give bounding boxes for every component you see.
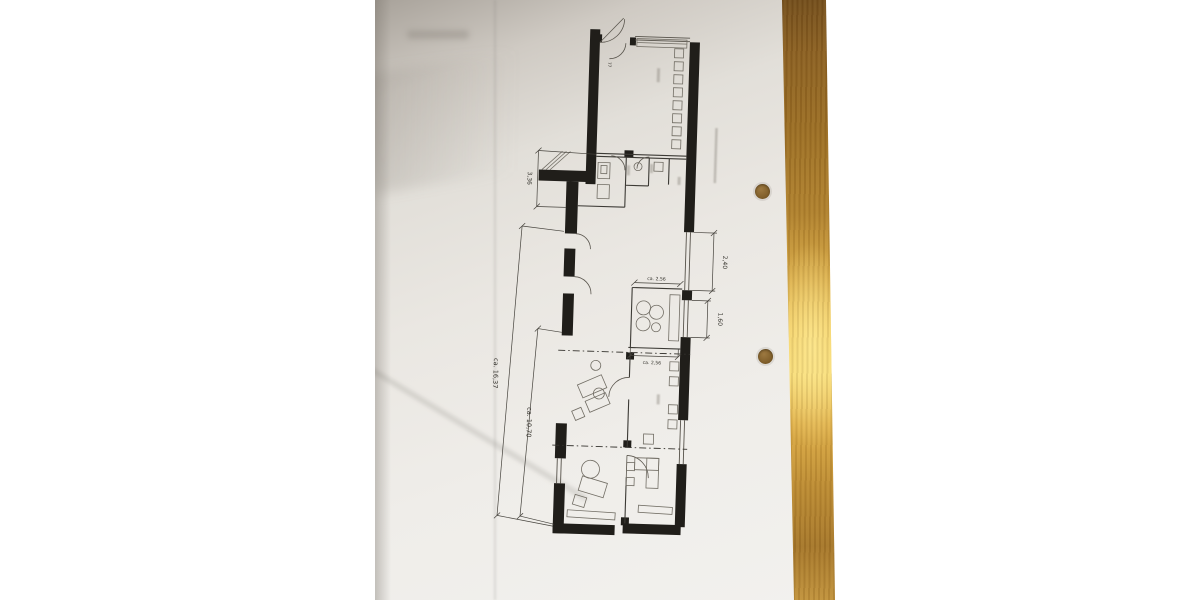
paper-right-edge-shadow [375,0,835,600]
floor-plan-paper-sheet: 3,36 2,40 1,60 ca. 2,56 ca. 2,56 ca. 16,… [375,0,835,600]
scene-canvas: 3,36 2,40 1,60 ca. 2,56 ca. 2,56 ca. 16,… [0,0,1200,600]
photo-of-floor-plan: 3,36 2,40 1,60 ca. 2,56 ca. 2,56 ca. 16,… [375,0,835,600]
